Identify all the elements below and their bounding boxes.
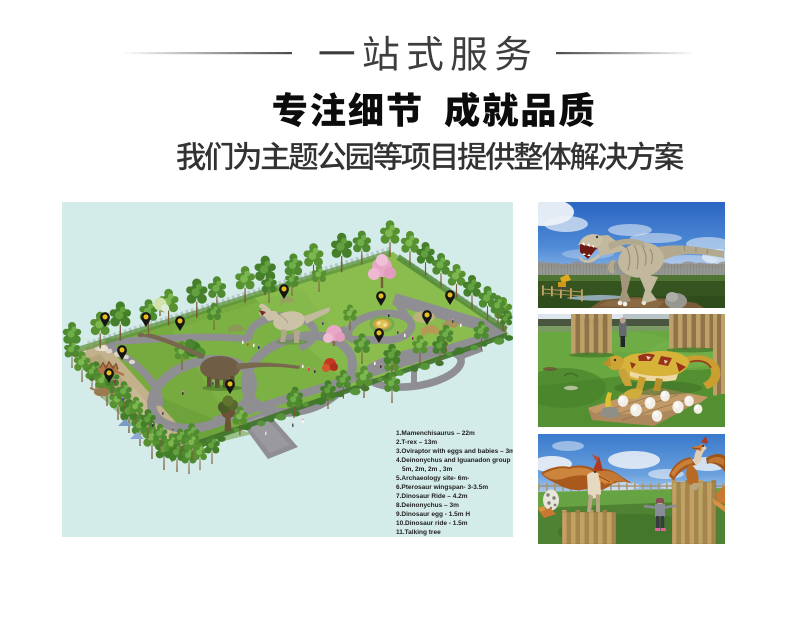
svg-text:2.T-rex – 13m: 2.T-rex – 13m <box>396 439 437 446</box>
svg-text:5m, 2m, 2m , 3m: 5m, 2m, 2m , 3m <box>402 466 452 473</box>
svg-text:8.Deinonychus – 3m: 8.Deinonychus – 3m <box>396 502 459 509</box>
svg-text:6.Pterosaur wingspan- 3-3.5m: 6.Pterosaur wingspan- 3-3.5m <box>396 484 488 491</box>
svg-text:5.Archaeology site- 6m-: 5.Archaeology site- 6m- <box>396 475 469 482</box>
svg-text:9.Dinosaur egg - 1.5m H: 9.Dinosaur egg - 1.5m H <box>396 511 470 518</box>
svg-text:7.Dinosaur Ride – 4.2m: 7.Dinosaur Ride – 4.2m <box>396 493 468 500</box>
svg-text:3.Oviraptor with eggs and babi: 3.Oviraptor with eggs and babies – 3m <box>396 448 513 455</box>
svg-text:4.Deinonychus and Iguanadon gr: 4.Deinonychus and Iguanadon group <box>396 457 511 464</box>
svg-text:10.Dinosaur ride - 1.5m: 10.Dinosaur ride - 1.5m <box>396 520 468 527</box>
svg-text:1.Mamenchisaurus – 22m: 1.Mamenchisaurus – 22m <box>396 430 475 437</box>
svg-text:11.Talking tree: 11.Talking tree <box>396 529 441 536</box>
